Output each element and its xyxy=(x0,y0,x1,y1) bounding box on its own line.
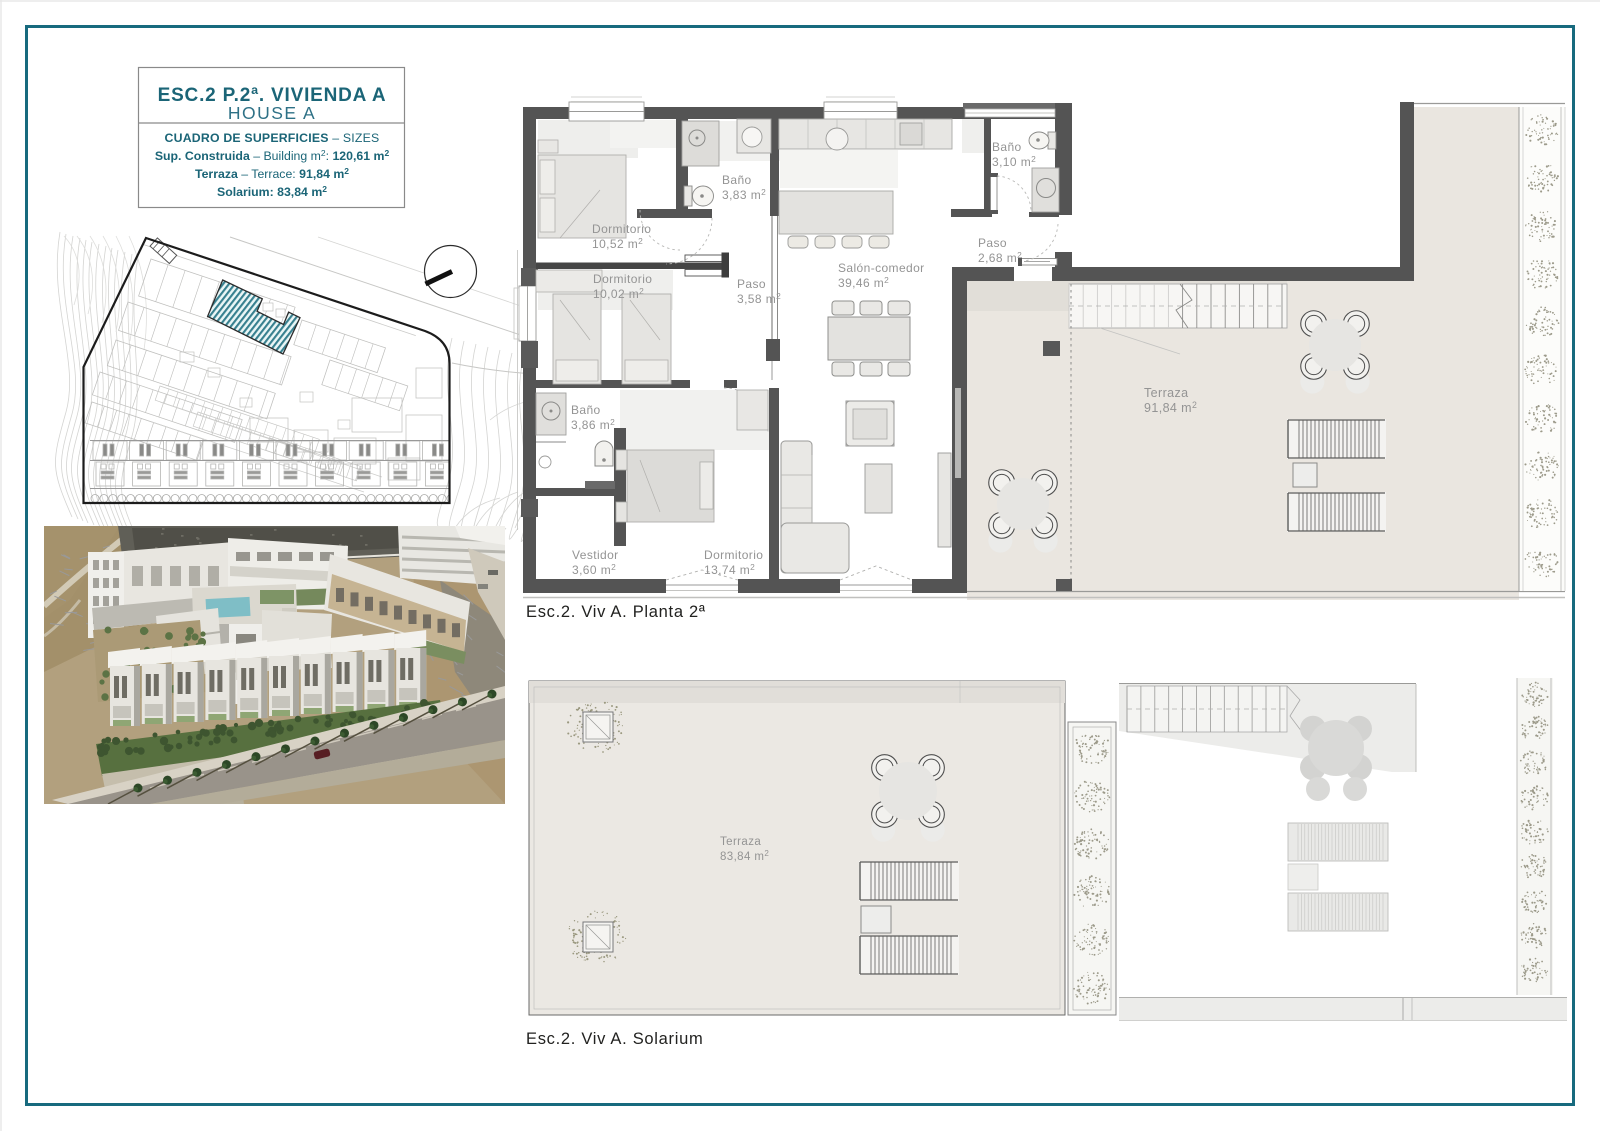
svg-text:Vestidor: Vestidor xyxy=(572,548,619,562)
svg-text:Terraza: Terraza xyxy=(720,836,761,848)
svg-text:10,02 m2: 10,02 m2 xyxy=(593,286,644,301)
svg-text:3,60 m2: 3,60 m2 xyxy=(572,562,616,577)
svg-text:Salón-comedor: Salón-comedor xyxy=(838,261,925,275)
svg-text:3,10 m2: 3,10 m2 xyxy=(992,154,1036,169)
svg-text:Dormitorio: Dormitorio xyxy=(593,272,652,286)
svg-text:39,46 m2: 39,46 m2 xyxy=(838,275,889,290)
svg-text:Dormitorio: Dormitorio xyxy=(592,222,651,236)
svg-text:Esc.2. Viv A. Solarium: Esc.2. Viv A. Solarium xyxy=(526,1030,703,1048)
svg-text:CUADRO DE SUPERFICIES – SIZES: CUADRO DE SUPERFICIES – SIZES xyxy=(165,131,380,145)
svg-text:3,86 m2: 3,86 m2 xyxy=(571,417,615,432)
svg-text:3,58 m2: 3,58 m2 xyxy=(737,291,781,306)
svg-text:Dormitorio: Dormitorio xyxy=(704,548,763,562)
svg-text:Paso: Paso xyxy=(978,236,1007,250)
svg-text:83,84 m2: 83,84 m2 xyxy=(720,849,769,863)
svg-text:Terraza: Terraza xyxy=(1144,386,1188,400)
svg-text:Esc.2. Viv A. Planta 2ª: Esc.2. Viv A. Planta 2ª xyxy=(526,603,706,621)
svg-text:Baño: Baño xyxy=(722,173,752,187)
svg-text:10,52 m2: 10,52 m2 xyxy=(592,236,643,251)
svg-text:Solarium: 83,84 m2: Solarium: 83,84 m2 xyxy=(217,184,327,199)
svg-text:HOUSE A: HOUSE A xyxy=(228,103,316,123)
svg-text:Sup. Construida – Building m2:: Sup. Construida – Building m2: 120,61 m2 xyxy=(155,148,390,163)
svg-text:Baño: Baño xyxy=(992,140,1022,154)
svg-text:13,74 m2: 13,74 m2 xyxy=(704,562,755,577)
svg-text:91,84 m2: 91,84 m2 xyxy=(1144,400,1197,415)
svg-text:Terraza – Terrace: 91,84 m2: Terraza – Terrace: 91,84 m2 xyxy=(195,166,349,181)
svg-text:Paso: Paso xyxy=(737,277,766,291)
svg-text:2,68 m2: 2,68 m2 xyxy=(978,250,1022,265)
svg-text:Baño: Baño xyxy=(571,403,601,417)
svg-text:3,83 m2: 3,83 m2 xyxy=(722,187,766,202)
